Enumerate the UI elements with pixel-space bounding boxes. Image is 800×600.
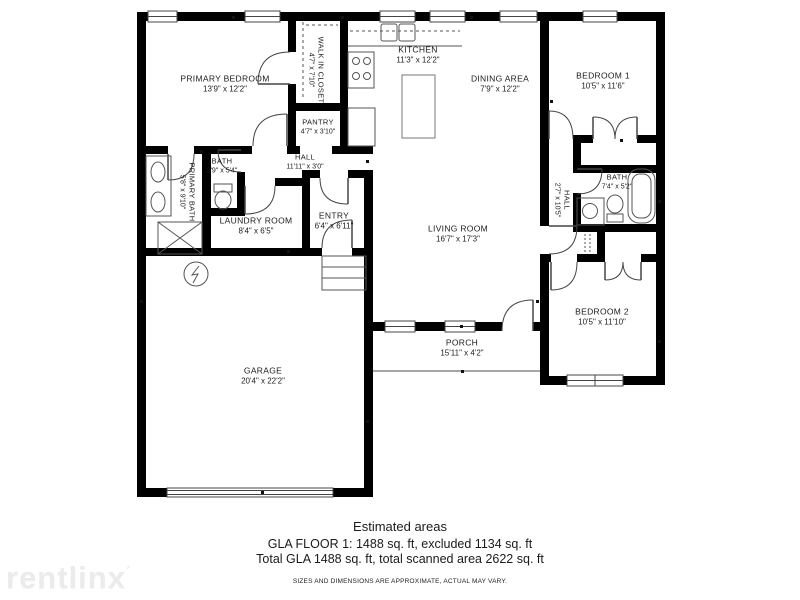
toilet-right-icon xyxy=(607,195,623,222)
floor-plan-svg xyxy=(0,0,800,600)
door-bedroom-1-closet xyxy=(593,117,637,139)
room-name: PANTRY xyxy=(302,118,334,128)
toilet-left-icon xyxy=(214,184,232,209)
room-dims: 10'5" x 11'10" xyxy=(578,317,626,327)
gla-floor-line: GLA FLOOR 1: 1488 sq. ft, excluded 1134 … xyxy=(0,537,800,552)
room-name: LIVING ROOM xyxy=(428,223,488,234)
linen-shelves xyxy=(585,234,590,252)
room-label-living-room: LIVING ROOM16'7" x 17'3" xyxy=(428,223,488,244)
door-entry xyxy=(320,178,348,204)
room-label-walk-in-closet: WALK IN CLOSET4'7" x 7'10" xyxy=(307,37,326,104)
room-dims: 2'7" x 10'5" xyxy=(553,183,562,218)
fridge-icon xyxy=(348,108,375,146)
room-dims: 4'7" x 7'10" xyxy=(307,53,316,88)
stove-icon xyxy=(348,52,374,88)
room-label-primary-bath: PRIMARY BATH5'8" x 9'10" xyxy=(178,162,197,221)
room-label-bath-right: BATH7'4" x 5'2" xyxy=(602,173,633,192)
room-dims: 11'3" x 12'2" xyxy=(396,55,439,65)
room-dims: 6'4" x 6'11" xyxy=(315,221,354,231)
room-name: PORCH xyxy=(446,337,478,348)
room-dims: 10'5" x 11'6" xyxy=(581,81,624,91)
room-name: ENTRY xyxy=(319,210,349,221)
room-name: BEDROOM 2 xyxy=(575,306,629,317)
door-bedroom-1 xyxy=(549,111,573,139)
room-dims: 13'9" x 12'2" xyxy=(203,84,247,94)
area-summary: Estimated areas GLA FLOOR 1: 1488 sq. ft… xyxy=(0,519,800,585)
room-dims: 2'9" x 5'4" xyxy=(207,166,238,175)
room-name: PRIMARY BEDROOM xyxy=(180,73,269,84)
room-dims: 4'7" x 3'10" xyxy=(301,127,336,136)
door-hall-right xyxy=(549,226,577,254)
room-name: PRIMARY BATH xyxy=(187,162,197,221)
room-name: KITCHEN xyxy=(398,44,437,55)
room-name: WALK IN CLOSET xyxy=(316,37,326,104)
room-name: LAUNDRY ROOM xyxy=(220,215,293,226)
room-label-kitchen: KITCHEN11'3" x 12'2" xyxy=(396,44,439,65)
room-label-bedroom-1: BEDROOM 110'5" x 11'6" xyxy=(576,70,630,91)
bath-right-vanity xyxy=(577,198,604,225)
room-label-entry: ENTRY6'4" x 6'11" xyxy=(315,210,354,231)
room-label-porch: PORCH15'11" x 4'2" xyxy=(440,337,483,358)
kitchen-island xyxy=(402,75,435,138)
room-label-dining-area: DINING AREA7'9" x 12'2" xyxy=(471,73,529,94)
disclaimer-text: SIZES AND DIMENSIONS ARE APPROXIMATE, AC… xyxy=(0,578,800,585)
room-label-bath-left: BATH2'9" x 5'4" xyxy=(207,157,238,176)
room-label-bedroom-2: BEDROOM 210'5" x 11'10" xyxy=(575,306,629,327)
room-label-hall-left: HALL11'11" x 3'0" xyxy=(286,153,323,172)
room-label-pantry: PANTRY4'7" x 3'10" xyxy=(301,118,336,137)
room-dims: 15'11" x 4'2" xyxy=(440,348,483,358)
room-dims: 7'4" x 5'2" xyxy=(602,182,633,191)
room-dims: 20'4" x 22'2" xyxy=(241,376,285,386)
room-name: BATH xyxy=(212,157,233,167)
door-bedroom-2-closet xyxy=(605,262,641,280)
room-dims: 5'8" x 9'10" xyxy=(178,175,187,210)
garage-steps xyxy=(322,256,366,290)
room-name: HALL xyxy=(295,153,315,163)
total-gla-line: Total GLA 1488 sq. ft, total scanned are… xyxy=(0,552,800,567)
room-dims: 16'7" x 17'3" xyxy=(436,234,480,244)
room-dims: 11'11" x 3'0" xyxy=(286,162,323,171)
door-primary-bedroom xyxy=(253,114,287,146)
room-dims: 7'9" x 12'2" xyxy=(480,84,519,94)
room-name: HALL xyxy=(562,190,572,210)
estimated-areas-heading: Estimated areas xyxy=(0,519,800,534)
kitchen-sink-icon xyxy=(381,24,415,41)
water-heater-icon xyxy=(184,262,208,286)
door-bedroom-2 xyxy=(551,262,577,290)
door-laundry xyxy=(245,186,275,214)
room-label-hall-right: HALL2'7" x 10'5" xyxy=(553,183,572,218)
room-label-laundry-room: LAUNDRY ROOM8'4" x 6'5" xyxy=(220,215,293,236)
room-name: BATH xyxy=(607,173,628,183)
room-name: GARAGE xyxy=(244,365,282,376)
room-dims: 8'4" x 6'5" xyxy=(239,226,274,236)
room-name: BEDROOM 1 xyxy=(576,70,630,81)
room-label-primary-bedroom: PRIMARY BEDROOM13'9" x 12'2" xyxy=(180,73,269,94)
room-name: DINING AREA xyxy=(471,73,529,84)
room-label-garage: GARAGE20'4" x 22'2" xyxy=(241,365,285,386)
